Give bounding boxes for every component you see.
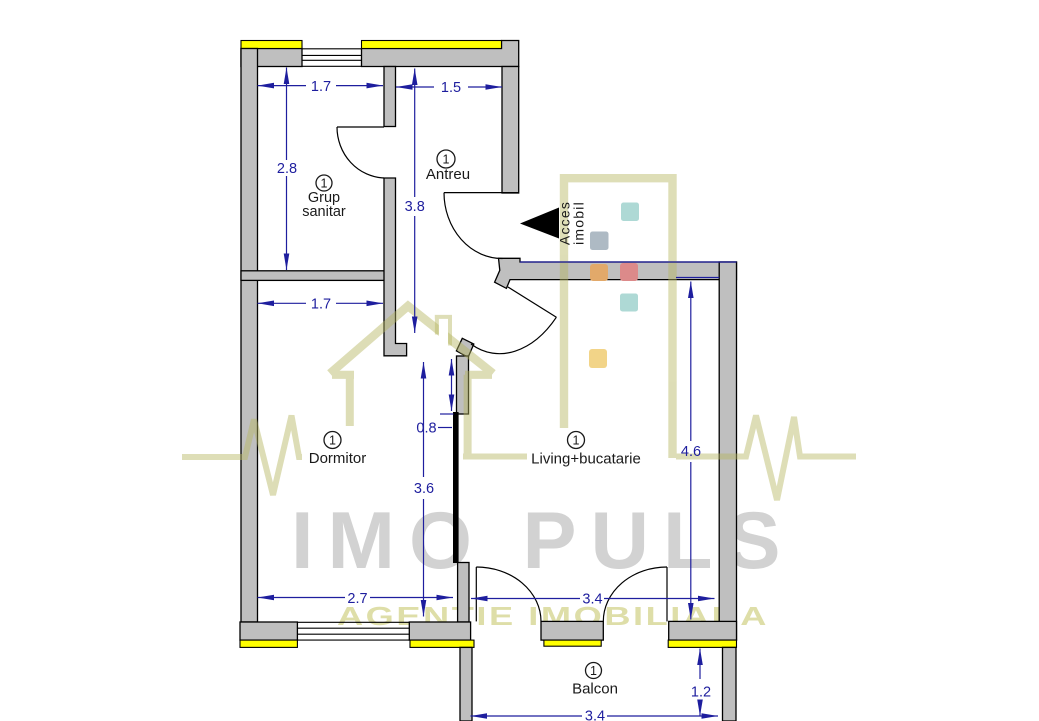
svg-text:3.4: 3.4 xyxy=(585,709,605,721)
svg-text:3.6: 3.6 xyxy=(414,481,434,497)
svg-text:1.5: 1.5 xyxy=(441,80,461,96)
svg-text:3.8: 3.8 xyxy=(405,199,425,215)
svg-text:imobil: imobil xyxy=(571,201,587,245)
svg-text:1: 1 xyxy=(590,664,597,678)
svg-text:2.8: 2.8 xyxy=(277,161,297,177)
svg-text:1: 1 xyxy=(573,434,580,448)
svg-text:Balcon: Balcon xyxy=(572,681,618,698)
svg-text:2.7: 2.7 xyxy=(347,591,367,607)
svg-text:1: 1 xyxy=(443,153,450,167)
svg-text:Antreu: Antreu xyxy=(426,166,470,183)
svg-text:1.7: 1.7 xyxy=(311,79,331,95)
svg-text:3.4: 3.4 xyxy=(582,592,602,608)
svg-text:1: 1 xyxy=(329,434,336,448)
svg-text:0.8: 0.8 xyxy=(416,421,436,437)
svg-text:1: 1 xyxy=(321,177,328,191)
svg-text:Living+bucatarie: Living+bucatarie xyxy=(531,451,641,468)
svg-text:4.6: 4.6 xyxy=(681,444,701,460)
svg-text:Dormitor: Dormitor xyxy=(309,450,367,467)
svg-text:1.7: 1.7 xyxy=(311,297,331,313)
svg-text:1.2: 1.2 xyxy=(691,685,711,701)
svg-text:sanitar: sanitar xyxy=(302,204,346,220)
